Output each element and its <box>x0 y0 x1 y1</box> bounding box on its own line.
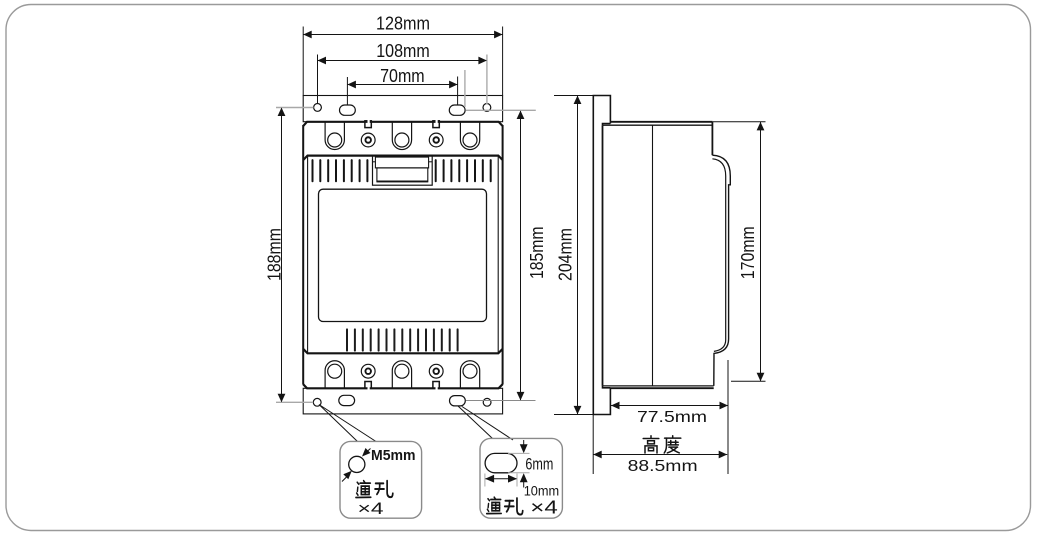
svg-text:×4: ×4 <box>530 498 558 518</box>
svg-text:185mm: 185mm <box>527 227 547 280</box>
svg-text:70mm: 70mm <box>380 66 425 86</box>
svg-text:M5mm: M5mm <box>371 447 416 464</box>
svg-text:10mm: 10mm <box>524 484 560 499</box>
svg-text:170mm: 170mm <box>738 226 758 279</box>
svg-text:88.5mm: 88.5mm <box>628 458 698 475</box>
svg-text:204mm: 204mm <box>556 228 576 281</box>
svg-text:188mm: 188mm <box>264 228 284 281</box>
svg-text:128mm: 128mm <box>376 14 430 34</box>
svg-text:77.5mm: 77.5mm <box>637 409 707 426</box>
svg-text:6mm: 6mm <box>525 456 553 474</box>
svg-text:108mm: 108mm <box>376 41 430 61</box>
svg-text:×4: ×4 <box>358 500 384 518</box>
